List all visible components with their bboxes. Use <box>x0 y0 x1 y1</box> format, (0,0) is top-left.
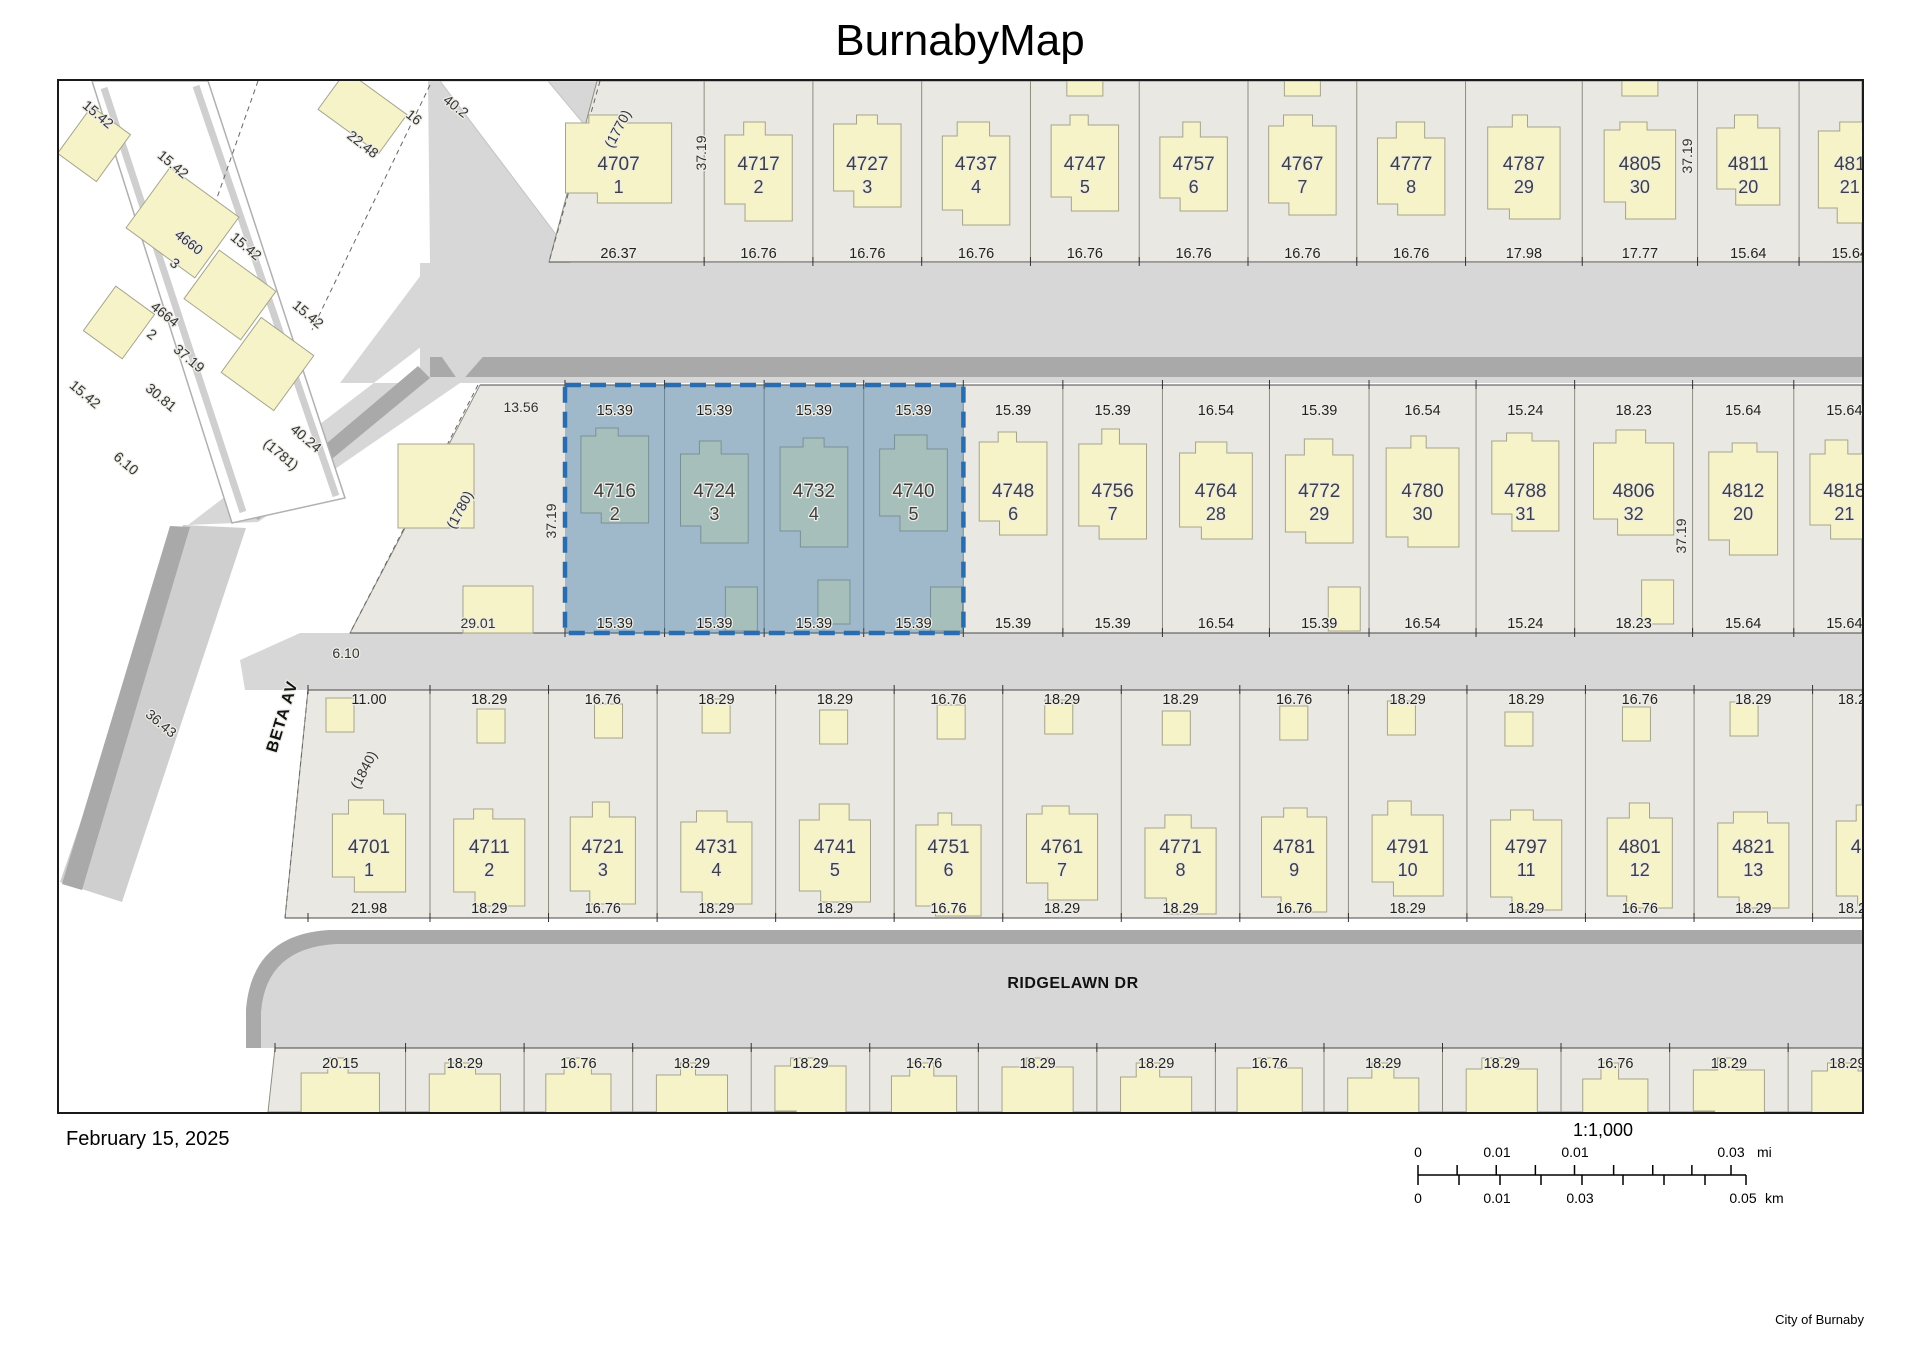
dimension-label: 18.29 <box>1162 692 1198 708</box>
scalebar-canvas: 00.010.010.03mi00.010.030.05km <box>1408 1143 1848 1207</box>
dimension-label: 18.29 <box>1838 901 1862 917</box>
map-annotation: 30.81 <box>143 380 180 415</box>
dimension-label: 15.39 <box>796 616 832 632</box>
parcel-lot-number: 7 <box>1108 504 1118 524</box>
parcel-lot-number: 21 <box>1834 504 1854 524</box>
dimension-label: 18.29 <box>1508 692 1544 708</box>
dimension-label: 18.29 <box>1484 1056 1520 1072</box>
parcel-lot-number: 30 <box>1630 177 1650 197</box>
parcel-lot-number: 31 <box>1515 504 1535 524</box>
dimension-label: 16.76 <box>1276 692 1312 708</box>
parcel-lot-number: 29 <box>1309 504 1329 524</box>
parcel-lot-number: 4 <box>971 177 981 197</box>
parcel-house-number: 4771 <box>1159 837 1201 858</box>
parcel-house-number: 4711 <box>469 837 510 858</box>
dimension-label: 16.76 <box>958 246 994 262</box>
dimension-label: 16.54 <box>1404 616 1440 632</box>
scale-km-tick: 0.01 <box>1483 1190 1510 1206</box>
dimension-label: 18.29 <box>1390 901 1426 917</box>
dimension-label: 15.39 <box>995 616 1031 632</box>
parcel-lot-number: 21 <box>1840 177 1860 197</box>
parcel-lot-number: 6 <box>1008 504 1018 524</box>
dimension-label: 18.29 <box>1735 901 1771 917</box>
dimension-label: 16.76 <box>1284 246 1320 262</box>
parcel-house-number: 4 <box>1851 837 1862 858</box>
map-annotation: 13.56 <box>503 399 538 415</box>
parcel-house-number: 4721 <box>582 837 624 858</box>
map-annotation: 37.19 <box>1673 518 1689 553</box>
dimension-label: 16.76 <box>1276 901 1312 917</box>
dimension-label: 18.29 <box>674 1056 710 1072</box>
scale-mi-tick: 0.03 <box>1717 1144 1744 1160</box>
parcel-house-number: 4811 <box>1728 154 1769 175</box>
street-middle <box>240 633 1862 690</box>
parcel-house-number: 4818 <box>1823 481 1862 502</box>
parcel-lot-number: 3 <box>598 860 608 880</box>
parcel-4731-4[interactable] <box>657 690 776 918</box>
dimension-label: 16.76 <box>740 246 776 262</box>
dimension-label: 15.24 <box>1507 403 1543 419</box>
dimension-label: 18.29 <box>1711 1056 1747 1072</box>
parcel-4761-7[interactable] <box>1003 690 1122 918</box>
parcel-house-number: 4777 <box>1390 154 1432 175</box>
parcel-4771-8[interactable] <box>1121 690 1240 918</box>
parcel-4751-6[interactable] <box>894 690 1003 918</box>
parcel-lot-number: 20 <box>1738 177 1758 197</box>
dimension-label: 18.29 <box>471 692 507 708</box>
dimension-label: 15.39 <box>1301 616 1337 632</box>
dimension-label: 18.29 <box>1138 1056 1174 1072</box>
parcel-house-number: 4707 <box>597 154 639 175</box>
dimension-label: 15.39 <box>1095 403 1131 419</box>
dimension-label: 15.64 <box>1826 403 1862 419</box>
parcel-4821-13[interactable] <box>1694 690 1813 918</box>
map-date: February 15, 2025 <box>66 1128 229 1151</box>
parcel-lot-number: 32 <box>1624 504 1644 524</box>
dimension-label: 11.00 <box>351 692 386 708</box>
scale-km-tick: 0.05 <box>1729 1190 1756 1206</box>
dimension-label: 21.98 <box>351 901 387 917</box>
dimension-label: 15.39 <box>597 616 633 632</box>
dimension-label: 15.64 <box>1725 616 1761 632</box>
scale-ratio: 1:1,000 <box>1408 1120 1798 1141</box>
parcel-4791-10[interactable] <box>1348 690 1467 918</box>
dimension-label: 16.76 <box>1622 692 1658 708</box>
parcel-house-number: 4732 <box>793 481 835 502</box>
parcel-4781-9[interactable] <box>1240 690 1349 918</box>
map-annotation: 15.42 <box>67 377 104 412</box>
dimension-label: 15.64 <box>1826 616 1862 632</box>
parcel-house-number: 4805 <box>1619 154 1661 175</box>
parcel-lot-number: 30 <box>1413 504 1433 524</box>
parcel-lot-number: 11 <box>1517 860 1536 880</box>
dimension-label: 15.39 <box>597 403 633 419</box>
parcel-lot-number: 2 <box>484 860 494 880</box>
dimension-label: 18.29 <box>792 1056 828 1072</box>
parcel-lot-number: 5 <box>908 504 918 524</box>
parcel-lot-number: 6 <box>1189 177 1199 197</box>
parcel-house-number: 4772 <box>1298 481 1340 502</box>
scale-mi-tick: 0 <box>1414 1144 1422 1160</box>
parcel-lot-number: 9 <box>1289 860 1299 880</box>
dimension-label: 17.98 <box>1506 246 1542 262</box>
parcel-house-number: 4701 <box>348 837 390 858</box>
dimension-label: 18.29 <box>1044 692 1080 708</box>
parcel-house-number: 4731 <box>695 837 737 858</box>
parcel-house-number: 4797 <box>1505 837 1547 858</box>
parcel-house-number: 4761 <box>1041 837 1083 858</box>
dimension-label: 15.24 <box>1507 616 1543 632</box>
dimension-label: 16.76 <box>906 1056 942 1072</box>
scalebar-graphic: 00.010.010.03mi00.010.030.05km <box>1408 1143 1848 1212</box>
parcel-lot-number: 8 <box>1406 177 1416 197</box>
scale-km-unit: km <box>1765 1190 1784 1206</box>
street-label-ridgelawn-dr: RIDGELAWN DR <box>1007 975 1138 992</box>
dimension-label: 16.76 <box>849 246 885 262</box>
parcel-4[interactable] <box>1813 690 1862 918</box>
dimension-label: 16.76 <box>585 692 621 708</box>
parcel-lot-number: 7 <box>1297 177 1307 197</box>
parcel-lot-number: 6 <box>943 860 953 880</box>
map-annotation: 6.10 <box>111 448 142 478</box>
parcel-lot-number: 20 <box>1733 504 1753 524</box>
dimension-label: 15.39 <box>995 403 1031 419</box>
dimension-label: 16.76 <box>930 692 966 708</box>
scale-mi-tick: 0.01 <box>1561 1144 1588 1160</box>
dimension-label: 26.37 <box>600 246 636 262</box>
parcel-house-number: 4727 <box>846 154 888 175</box>
dimension-label: 15.39 <box>796 403 832 419</box>
parcel-lot-number: 2 <box>754 177 764 197</box>
attribution: City of Burnaby <box>1775 1312 1864 1327</box>
dimension-label: 16.76 <box>1175 246 1211 262</box>
dimension-label: 15.64 <box>1730 246 1766 262</box>
scale-mi-tick: 0.01 <box>1483 1144 1510 1160</box>
map-canvas: 26.3716.7616.7616.7616.7616.7616.7616.76… <box>59 81 1862 1112</box>
street-label-beta-av: BETA AV <box>264 679 302 754</box>
parcel-house-number: 4747 <box>1064 154 1106 175</box>
dimension-label: 16.76 <box>930 901 966 917</box>
parcel-lot-number: 5 <box>830 860 840 880</box>
dimension-label: 16.76 <box>1252 1056 1288 1072</box>
map-annotation: 2 <box>144 325 160 343</box>
scale-km-tick: 0 <box>1414 1190 1422 1206</box>
parcel-house-number: 4812 <box>1722 481 1764 502</box>
dimension-label: 16.76 <box>1622 901 1658 917</box>
scalebar: 1:1,000 00.010.010.03mi00.010.030.05km <box>1408 1120 1848 1212</box>
parcel-lot-number: 29 <box>1514 177 1534 197</box>
parcel-house-number: 4781 <box>1273 837 1315 858</box>
dimension-label: 18.29 <box>1838 692 1862 708</box>
dimension-label: 18.29 <box>1019 1056 1055 1072</box>
dimension-label: 16.76 <box>560 1056 596 1072</box>
parcel-lot-number: 3 <box>862 177 872 197</box>
dimension-label: 18.29 <box>1365 1056 1401 1072</box>
parcel-house-number: 4757 <box>1172 154 1214 175</box>
page-title: BurnabyMap <box>0 16 1920 66</box>
dimension-label: 18.29 <box>1044 901 1080 917</box>
parcel-house-number: 4737 <box>955 154 997 175</box>
dimension-label: 16.54 <box>1198 403 1234 419</box>
parcel-house-number: 4756 <box>1092 481 1134 502</box>
parcel-4701-1[interactable] <box>308 690 430 918</box>
parcel-house-number: 4740 <box>892 481 934 502</box>
parcel-lot-number: 2 <box>610 504 620 524</box>
parcel-house-number: 4748 <box>992 481 1034 502</box>
parcel-house-number: 4788 <box>1504 481 1546 502</box>
map-annotation: 29.01 <box>460 615 495 631</box>
dimension-label: 16.54 <box>1198 616 1234 632</box>
parcel-4711-2[interactable] <box>430 690 549 918</box>
parcel-house-number: 4767 <box>1281 154 1323 175</box>
parcel-lot-number: 7 <box>1057 860 1067 880</box>
dimension-label: 16.76 <box>1393 246 1429 262</box>
dimension-label: 15.39 <box>696 403 732 419</box>
map-annotation: 37.19 <box>543 503 559 538</box>
parcel-house-number: 4717 <box>737 154 779 175</box>
dimension-label: 18.29 <box>1162 901 1198 917</box>
parcel-lot-number: 8 <box>1176 860 1186 880</box>
dimension-label: 15.39 <box>696 616 732 632</box>
dimension-label: 16.76 <box>1597 1056 1633 1072</box>
parcel-4801-12[interactable] <box>1585 690 1694 918</box>
parcel-4721-3[interactable] <box>549 690 658 918</box>
dimension-label: 15.39 <box>895 403 931 419</box>
parcel-lot-number: 1 <box>614 177 624 197</box>
parcel-lot-number: 10 <box>1398 860 1418 880</box>
parcel-house-number: 481 <box>1834 154 1862 175</box>
map-annotation: 6.10 <box>332 645 359 661</box>
parcel-house-number: 4787 <box>1503 154 1545 175</box>
map-annotation: 16 <box>403 106 425 128</box>
parcel-lot-number: 4 <box>711 860 721 880</box>
parcel-house-number: 4821 <box>1732 837 1774 858</box>
parcel-lot-number: 12 <box>1630 860 1650 880</box>
dimension-label: 17.77 <box>1622 246 1658 262</box>
parcel-house-number: 4801 <box>1619 837 1661 858</box>
map-annotation: 37.19 <box>1679 138 1695 173</box>
scale-km-tick: 0.03 <box>1566 1190 1593 1206</box>
building-footprint <box>83 286 154 359</box>
dimension-label: 15.64 <box>1832 246 1862 262</box>
parcel-lot-number: 3 <box>709 504 719 524</box>
dimension-label: 18.29 <box>1829 1056 1862 1072</box>
parcel-lot-number: 1 <box>364 860 374 880</box>
dimension-label: 18.29 <box>1508 901 1544 917</box>
dimension-label: 15.39 <box>895 616 931 632</box>
dimension-label: 18.29 <box>817 692 853 708</box>
parcel-house-number: 4791 <box>1387 837 1429 858</box>
parcel-4741-5[interactable] <box>776 690 895 918</box>
dimension-label: 16.76 <box>585 901 621 917</box>
parcel-4797-11[interactable] <box>1467 690 1586 918</box>
map-annotation: 15.42 <box>290 297 327 332</box>
dimension-label: 18.29 <box>1390 692 1426 708</box>
dimension-label: 18.29 <box>1735 692 1771 708</box>
map-annotation: 37.19 <box>693 135 709 170</box>
parcel-house-number: 4806 <box>1612 481 1654 502</box>
parcel-lot-number: 13 <box>1743 860 1763 880</box>
parcel-house-number: 4764 <box>1195 481 1238 502</box>
scale-mi-unit: mi <box>1757 1144 1772 1160</box>
dimension-label: 18.29 <box>698 901 734 917</box>
dimension-label: 20.15 <box>322 1056 358 1072</box>
parcel-lot-number: 28 <box>1206 504 1226 524</box>
parcel-lot-number: 4 <box>809 504 819 524</box>
parcel-house-number: 4716 <box>594 481 636 502</box>
map-frame: 26.3716.7616.7616.7616.7616.7616.7616.76… <box>57 79 1864 1114</box>
dimension-label: 15.64 <box>1725 403 1761 419</box>
dimension-label: 18.29 <box>817 901 853 917</box>
parcel-house-number: 4741 <box>814 837 856 858</box>
parcel-house-number: 4751 <box>927 837 969 858</box>
dimension-label: 15.39 <box>1095 616 1131 632</box>
dimension-label: 15.39 <box>1301 403 1337 419</box>
dimension-label: 18.23 <box>1615 616 1651 632</box>
dimension-label: 18.29 <box>698 692 734 708</box>
dimension-label: 18.23 <box>1615 403 1651 419</box>
dimension-label: 18.29 <box>447 1056 483 1072</box>
dimension-label: 18.29 <box>471 901 507 917</box>
parcel-house-number: 4780 <box>1401 481 1443 502</box>
parcel-house-number: 4724 <box>693 481 736 502</box>
parcel-lot-number: 5 <box>1080 177 1090 197</box>
dimension-label: 16.54 <box>1404 403 1440 419</box>
dimension-label: 16.76 <box>1067 246 1103 262</box>
